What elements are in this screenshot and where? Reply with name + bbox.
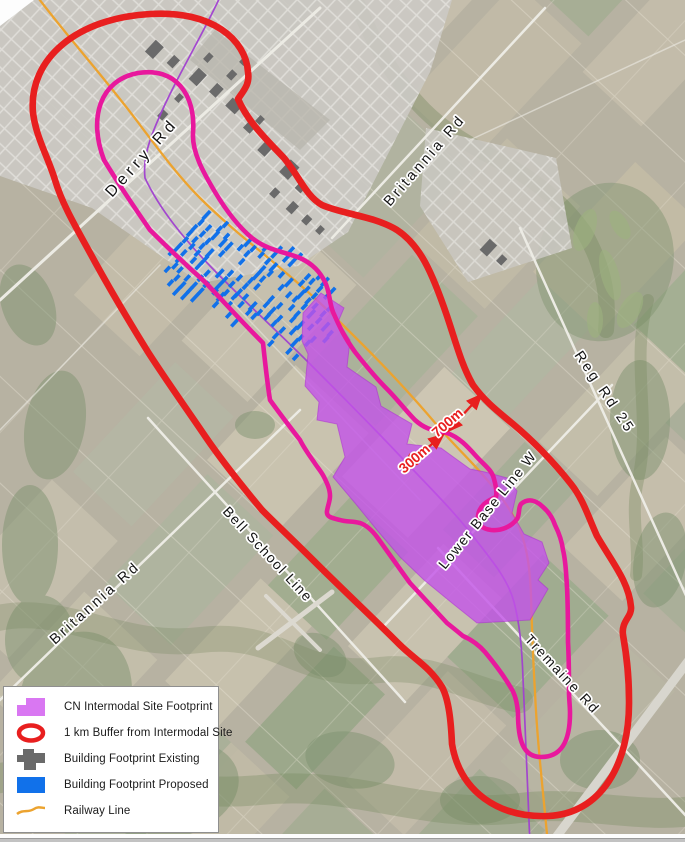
legend-label: 1 km Buffer from Intermodal Site — [64, 727, 233, 739]
legend-item-site-footprint: CN Intermodal Site Footprint — [14, 694, 212, 720]
existing-building-swatch-icon — [14, 747, 48, 772]
site-footprint-swatch-icon — [14, 696, 48, 718]
legend: CN Intermodal Site Footprint 1 km Buffer… — [3, 686, 219, 833]
page-edge-bar — [0, 838, 685, 842]
legend-item-building-proposed: Building Footprint Proposed — [14, 772, 212, 798]
legend-item-building-existing: Building Footprint Existing — [14, 746, 212, 772]
legend-label: Building Footprint Proposed — [64, 779, 209, 791]
legend-label: Building Footprint Existing — [64, 753, 200, 765]
legend-label: Railway Line — [64, 805, 130, 817]
buffer-ring-swatch-icon — [14, 722, 48, 744]
legend-item-railway: Railway Line — [14, 798, 212, 824]
legend-item-buffer-1km: 1 km Buffer from Intermodal Site — [14, 720, 212, 746]
proposed-building-swatch-icon — [14, 774, 48, 796]
map-figure: Derry Rd Britannia Rd Britannia Rd Reg R… — [0, 0, 685, 842]
railway-swatch-icon — [14, 803, 48, 819]
legend-label: CN Intermodal Site Footprint — [64, 701, 213, 713]
